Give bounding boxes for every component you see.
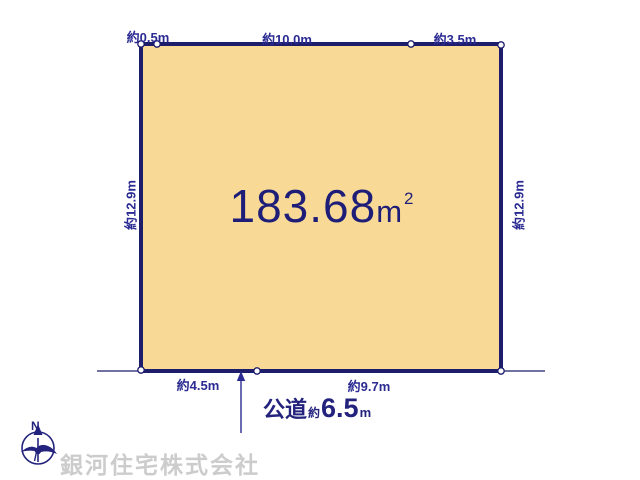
- road-arrow: [237, 371, 245, 433]
- dimension-right: 約12.9m: [509, 180, 528, 230]
- vertex-dot: [138, 367, 144, 373]
- area-unit: m: [376, 194, 403, 229]
- road-name: 公道: [263, 397, 307, 422]
- lot-plan-canvas: N 約0.5m 約10.0m 約3.5m 約12.9m 約12.9m 約4.5m…: [0, 0, 640, 480]
- vertex-dot: [408, 41, 414, 47]
- road-approx: 約: [308, 406, 320, 420]
- dimension-bottom-left: 約4.5m: [177, 375, 220, 394]
- road-width-value: 6.5: [321, 393, 359, 423]
- dimension-top-left: 約0.5m: [127, 27, 170, 46]
- vertex-dot: [254, 368, 260, 374]
- area-unit-superscript: 2: [404, 189, 414, 208]
- vertex-dot: [498, 368, 504, 374]
- dimension-top-right: 約3.5m: [434, 29, 477, 48]
- vertex-dot: [498, 42, 504, 48]
- dimension-left: 約12.9m: [121, 180, 140, 230]
- company-watermark: 銀河住宅株式会社: [60, 446, 260, 480]
- road-label: 公道約6.5m: [263, 392, 371, 424]
- compass-north-label: N: [31, 419, 40, 433]
- area-value: 183.68: [230, 180, 377, 232]
- dimension-top-center: 約10.0m: [262, 29, 312, 48]
- area-label: 183.68m2: [230, 179, 415, 233]
- compass-icon: N: [21, 419, 57, 464]
- road-width-unit: m: [360, 405, 372, 420]
